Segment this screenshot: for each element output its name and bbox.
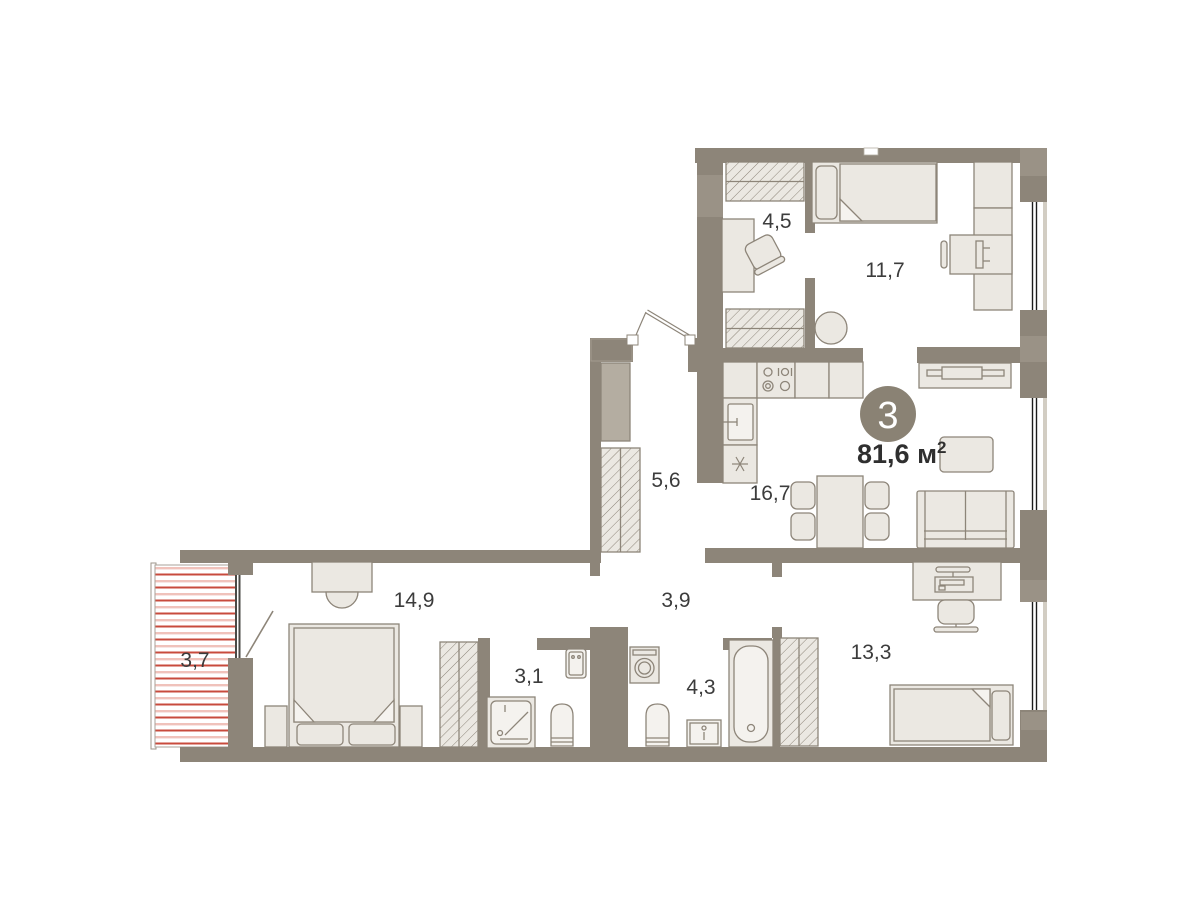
floor-plan: 3 81,6 м2 4,5 11,7 5,6 16,7 3,9 14,9 3,1… [0,0,1200,911]
office-chair [934,600,978,632]
dining-chair [791,482,815,509]
single-bed-upper [812,162,937,223]
label-bedroom-upper: 11,7 [865,259,904,282]
pouf [815,312,847,344]
double-bed [289,624,399,747]
tv-stand [919,363,1011,388]
wall-sink-small [566,649,586,678]
top-wall-notch [864,148,878,155]
kitchen-counter [723,362,863,398]
label-bathroom: 4,3 [686,676,715,699]
clothes-rack-bottom [726,309,804,348]
clothes-rack-top [726,162,804,201]
label-balcony: 3,7 [180,649,209,672]
toilet-shower-room [551,704,573,746]
window-bedroom-right [1020,602,1047,710]
bedroom-wardrobe [440,642,478,747]
dining-chair [865,482,889,509]
total-area: 81,6 м2 [857,438,947,469]
label-dressing-room: 4,5 [762,210,791,233]
dining-chair [865,513,889,540]
entrance-door [627,310,695,345]
dressing-table [312,562,372,608]
label-bedroom-left: 14,9 [394,589,435,612]
wardrobe-cabinet-upper [974,162,1012,208]
right-bedroom-wardrobe [780,638,818,746]
desk-upper [941,235,1012,274]
bathtub [729,640,773,747]
washing-machine-drum [630,647,659,683]
dining-chair [791,513,815,540]
shower-cabin [487,697,535,748]
hall-cabinet [601,363,630,441]
stove [757,362,795,398]
toilet-bathroom [646,704,669,746]
nightstand-left [265,706,287,747]
label-shower-room: 3,1 [514,665,543,688]
washing-machine-icon [723,445,757,483]
duct-shaft [590,627,628,750]
windows [1020,202,1047,710]
window-living-room [1020,398,1047,510]
floor-plan-canvas: 3 81,6 м2 4,5 11,7 5,6 16,7 3,9 14,9 3,1… [0,0,1200,911]
nightstand-right [400,706,422,747]
desk-right-bedroom [913,562,1001,600]
monitor-icon [936,567,970,572]
bathroom-sink [687,720,721,747]
hall-wardrobe [601,448,640,552]
label-bedroom-right: 13,3 [851,641,892,664]
kitchen-sink [723,398,757,445]
sofa [917,491,1014,548]
single-bed-right [890,685,1013,745]
label-corridor: 5,6 [651,469,680,492]
window-bedroom-upper [1020,202,1047,310]
label-hallway: 3,9 [661,589,690,612]
label-kitchen-living: 16,7 [750,482,791,505]
coffee-table [940,437,993,472]
dining-table [817,476,863,548]
balcony-door [235,575,273,658]
room-count: 3 [877,395,898,437]
dining-table-set [791,476,889,548]
room-count-badge: 3 [860,386,916,442]
